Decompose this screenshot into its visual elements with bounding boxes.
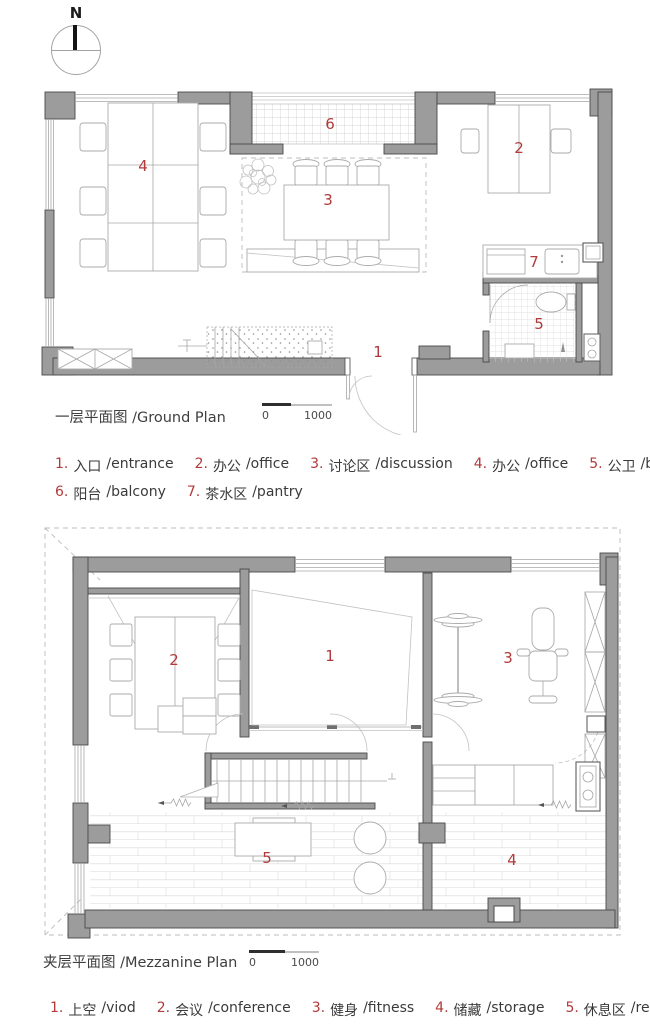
- floor-plan-sheet: N: [0, 0, 650, 1027]
- legend-zh: 讨论区: [328, 456, 370, 476]
- mezzanine-scale-bar: 0 1000: [249, 950, 319, 969]
- void-opening: [249, 590, 423, 731]
- ground-legend-row-1: 1. 入口 /entrance 2. 办公 /office 3. 讨论区 /di…: [55, 456, 650, 476]
- legend-zh: 阳台: [73, 484, 101, 504]
- ground-legend-row-2: 6. 阳台 /balcony 7. 茶水区 /pantry: [55, 484, 303, 504]
- mezz-room-label-2: 2: [169, 651, 179, 669]
- legend-zh: 健身: [330, 1000, 358, 1020]
- compass-needle: [73, 25, 77, 50]
- mezzanine-stairs: [211, 759, 396, 809]
- scale-bar-light-segment: [285, 951, 319, 953]
- north-label: N: [70, 4, 83, 22]
- scale-end-label: 1000: [291, 956, 319, 969]
- mezzanine-plan-title: 夹层平面图 /Mezzanine Plan: [43, 951, 237, 972]
- legend-zh: 茶水区: [205, 484, 247, 504]
- discussion-table-and-chairs: [284, 160, 389, 266]
- legend-zh: 休息区: [584, 1000, 626, 1020]
- legend-zh: 会议: [175, 1000, 203, 1020]
- legend-en: /entrance: [106, 456, 173, 476]
- ground-scale-bar: 0 1000: [262, 403, 332, 422]
- legend-item-balcony: 6. 阳台 /balcony: [55, 484, 166, 504]
- ground-room-label-2: 2: [514, 139, 524, 157]
- mezz-room-label-1: 1: [325, 647, 335, 665]
- legend-item-pantry: 7. 茶水区 /pantry: [187, 484, 303, 504]
- mezzanine-plan-drawing: 1 2 3 4 5: [40, 520, 625, 950]
- legend-num: 4.: [435, 1000, 448, 1020]
- ground-room-label-5: 5: [534, 315, 544, 333]
- legend-num: 5.: [565, 1000, 578, 1020]
- ground-plan-drawing: 1 2 3 4 5 6 7: [40, 85, 620, 435]
- scale-start-label: 0: [262, 409, 269, 422]
- legend-num: 1.: [55, 456, 68, 476]
- legend-zh: 入口: [73, 456, 101, 476]
- scale-bar-line: [249, 950, 319, 953]
- legend-num: 3.: [312, 1000, 325, 1020]
- legend-en: /fitness: [363, 1000, 414, 1020]
- mezz-room-label-4: 4: [507, 851, 517, 869]
- pantry-counter: [483, 243, 603, 278]
- scale-bar-labels: 0 1000: [262, 409, 332, 422]
- legend-item-fitness: 3. 健身 /fitness: [312, 1000, 414, 1020]
- ground-room-label-3: 3: [323, 191, 333, 209]
- legend-zh: 办公: [492, 456, 520, 476]
- legend-item-office2: 2. 办公 /office: [195, 456, 290, 476]
- legend-en: /conference: [208, 1000, 291, 1020]
- legend-en: /rest: [631, 1000, 650, 1020]
- ground-room-label-7: 7: [529, 253, 539, 271]
- mezz-room-label-5: 5: [262, 849, 272, 867]
- legend-zh: 办公: [213, 456, 241, 476]
- legend-zh: 上空: [68, 1000, 96, 1020]
- mezz-room-label-3: 3: [503, 649, 513, 667]
- scale-bar-labels: 0 1000: [249, 956, 319, 969]
- legend-item-discussion: 3. 讨论区 /discussion: [310, 456, 453, 476]
- scale-bar-dark-segment: [249, 950, 285, 953]
- compass-horizon-line: [51, 50, 101, 51]
- legend-zh: 公卫: [608, 456, 636, 476]
- scale-bar-line: [262, 403, 332, 406]
- legend-num: 7.: [187, 484, 200, 504]
- legend-num: 5.: [589, 456, 602, 476]
- legend-num: 4.: [474, 456, 487, 476]
- legend-item-rest: 5. 休息区 /rest: [565, 1000, 650, 1020]
- legend-en: /office: [246, 456, 289, 476]
- plant-icon: [240, 159, 276, 194]
- legend-item-storage: 4. 储藏 /storage: [435, 1000, 544, 1020]
- fitness-equipment: [434, 592, 605, 778]
- scale-bar-dark-segment: [262, 403, 291, 406]
- legend-en: /viod: [101, 1000, 135, 1020]
- legend-num: 3.: [310, 456, 323, 476]
- wood-floor: [90, 812, 606, 908]
- ground-plan-title: 一层平面图 /Ground Plan: [55, 406, 226, 427]
- legend-item-office4: 4. 办公 /office: [474, 456, 569, 476]
- legend-num: 1.: [50, 1000, 63, 1020]
- legend-num: 2.: [195, 456, 208, 476]
- legend-num: 6.: [55, 484, 68, 504]
- legend-en: /bath: [641, 456, 650, 476]
- legend-item-void: 1. 上空 /viod: [50, 1000, 136, 1020]
- north-compass-icon: N: [48, 4, 104, 80]
- legend-en: /office: [525, 456, 568, 476]
- office4-table-and-chairs: [80, 103, 226, 271]
- legend-en: /pantry: [252, 484, 303, 504]
- ground-room-label-1: 1: [373, 343, 383, 361]
- scale-bar-light-segment: [291, 404, 332, 406]
- ground-room-label-6: 6: [325, 115, 335, 133]
- legend-item-conference: 2. 会议 /conference: [157, 1000, 291, 1020]
- conference-table-and-chairs: [88, 596, 240, 732]
- scale-end-label: 1000: [304, 409, 332, 422]
- legend-en: /discussion: [375, 456, 452, 476]
- bathroom: [489, 283, 600, 362]
- legend-en: /balcony: [106, 484, 166, 504]
- legend-zh: 储藏: [454, 1000, 482, 1020]
- crossed-cabinet: [58, 349, 132, 369]
- ground-room-label-4: 4: [138, 157, 148, 175]
- legend-en: /storage: [487, 1000, 545, 1020]
- legend-num: 2.: [157, 1000, 170, 1020]
- legend-item-bath: 5. 公卫 /bath: [589, 456, 650, 476]
- legend-item-entrance: 1. 入口 /entrance: [55, 456, 174, 476]
- mezzanine-legend-row: 1. 上空 /viod 2. 会议 /conference 3. 健身 /fit…: [50, 1000, 650, 1020]
- entrance-doors: [345, 358, 417, 435]
- scale-start-label: 0: [249, 956, 256, 969]
